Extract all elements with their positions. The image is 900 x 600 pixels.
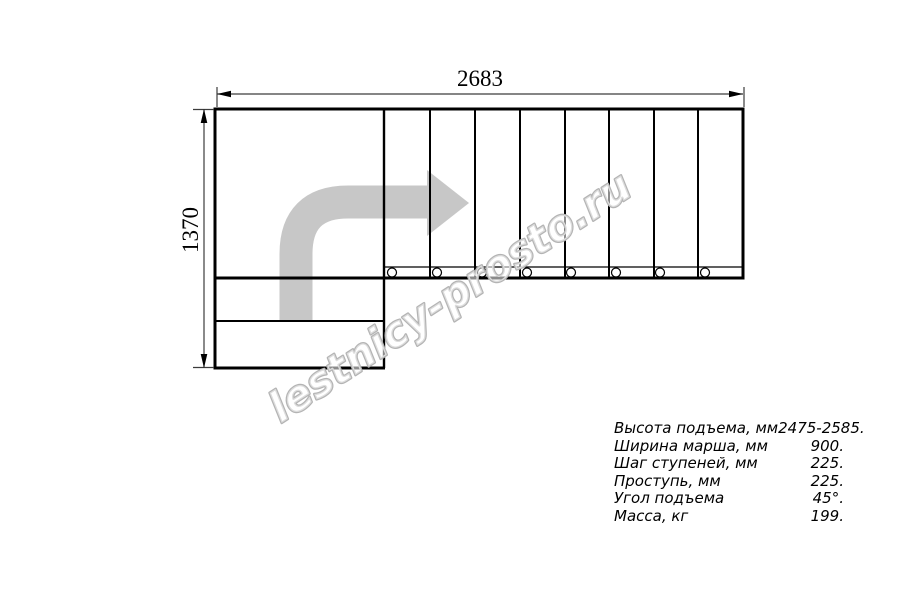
stair-drawing-canvas: 2683 1370 lestnicy-prosto.ru Высота подъ… [0, 0, 900, 600]
dimension-arrow-left [217, 91, 231, 98]
spec-label: Шаг ступеней, мм [614, 455, 758, 473]
spec-row: Проступь, мм 225. [614, 473, 844, 491]
spec-value: 900. [811, 438, 844, 456]
baluster-circle [701, 268, 710, 277]
spec-value: 199. [811, 508, 844, 526]
spec-value: 225. [811, 473, 844, 491]
dimension-height-label: 1370 [178, 207, 203, 253]
dimension-arrow-right [729, 91, 743, 98]
direction-arrow-head [427, 170, 469, 236]
baluster-circle [612, 268, 621, 277]
dimension-left: 1370 [178, 109, 214, 368]
spec-label: Высота подъема, мм [614, 420, 778, 438]
baluster-circle [656, 268, 665, 277]
dimension-width-label: 2683 [457, 66, 503, 91]
spec-row: Угол подъема 45°. [614, 490, 844, 508]
spec-row: Масса, кг 199. [614, 508, 844, 526]
baluster-circle [567, 268, 576, 277]
spec-label: Угол подъема [614, 490, 724, 508]
spec-value: 45°. [813, 490, 844, 508]
spec-label: Проступь, мм [614, 473, 721, 491]
spec-label: Ширина марша, мм [614, 438, 768, 456]
spec-label: Масса, кг [614, 508, 688, 526]
spec-row: Высота подъема, мм 2475-2585. [614, 420, 844, 438]
dimension-arrow-up [201, 109, 208, 123]
spec-value: 225. [811, 455, 844, 473]
specs-table: Высота подъема, мм 2475-2585. Ширина мар… [614, 420, 844, 526]
baluster-circle [388, 268, 397, 277]
dimension-top: 2683 [217, 66, 744, 107]
spec-value: 2475-2585. [778, 420, 865, 438]
spec-row: Ширина марша, мм 900. [614, 438, 844, 456]
spec-row: Шаг ступеней, мм 225. [614, 455, 844, 473]
dimension-arrow-down [201, 354, 208, 368]
